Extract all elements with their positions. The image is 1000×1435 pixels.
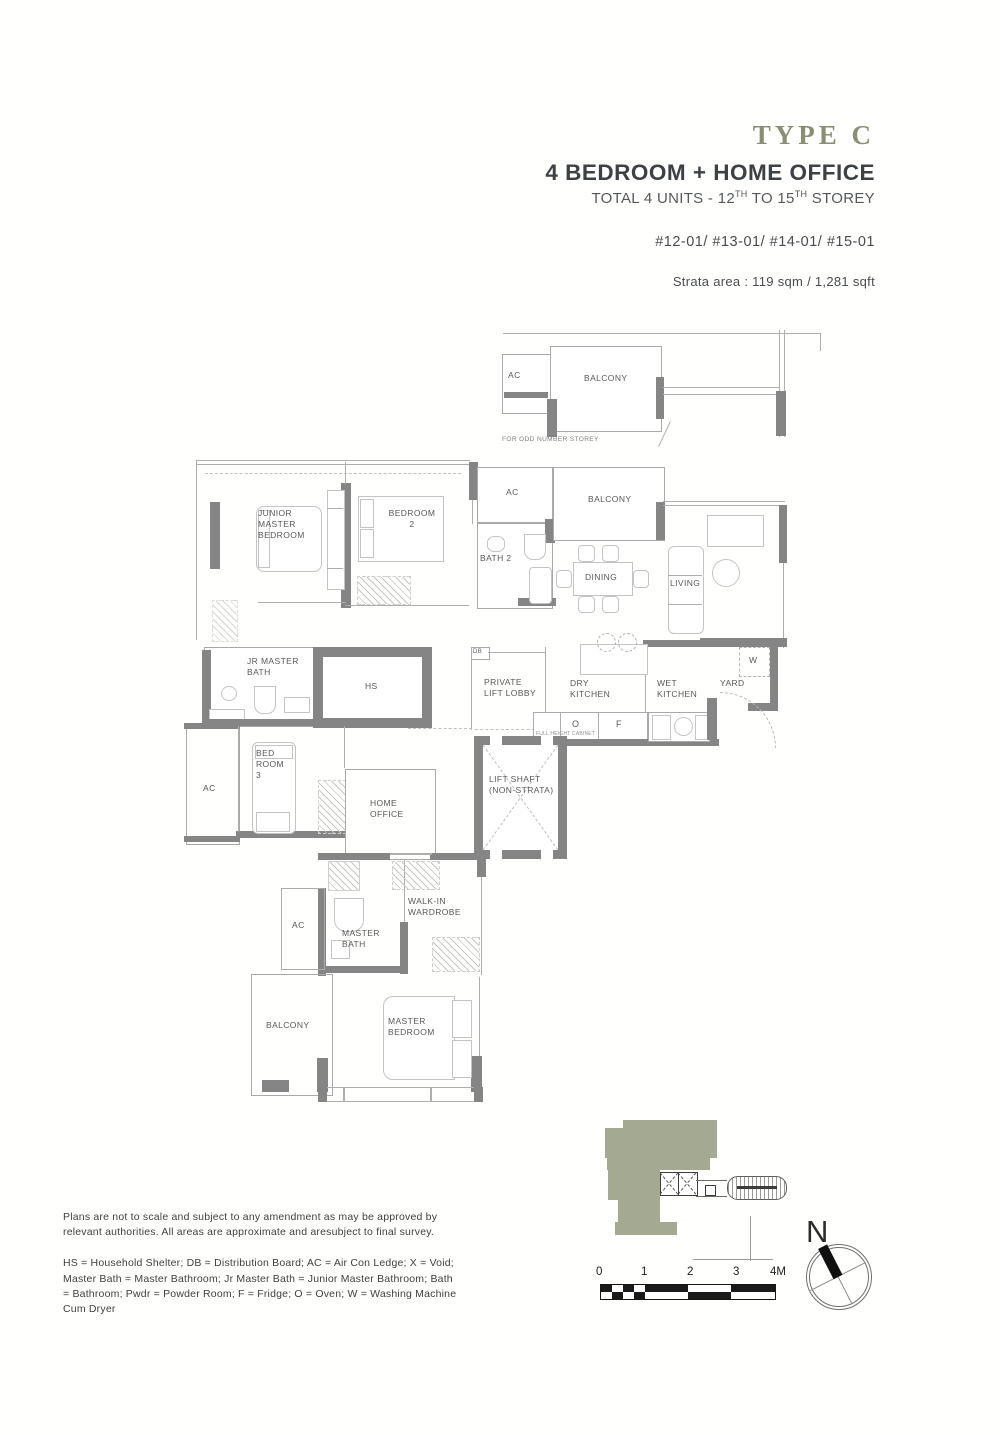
wall-line (663, 387, 780, 388)
furniture-chair (602, 596, 619, 613)
room-label: JR MASTER BATH (247, 656, 299, 678)
room-label: AC (203, 783, 216, 794)
wall-line (196, 464, 470, 465)
room-label: BEDROOM 2 (384, 508, 440, 530)
storey-sup: TH (735, 189, 748, 199)
keyplan-stair-rail (737, 1186, 777, 1189)
furniture-sofa (668, 546, 704, 634)
keyplan-line (693, 1259, 773, 1260)
wall-line (345, 462, 346, 484)
wall (430, 853, 486, 860)
keyplan-unit-shape (618, 1200, 660, 1222)
footer: Plans are not to scale and subject to an… (63, 1210, 461, 1333)
scale-seg (731, 1292, 775, 1299)
page-title: 4 BEDROOM + HOME OFFICE (255, 160, 875, 186)
storey-part: TO 15 (748, 190, 795, 207)
furniture-bench (256, 812, 290, 832)
furniture-counter (284, 697, 310, 713)
furniture-sink (487, 536, 505, 552)
furniture-wardrobe (392, 861, 440, 890)
furniture-pillow (452, 1000, 472, 1038)
wall (700, 638, 787, 647)
wall (504, 392, 548, 398)
header: TYPE C 4 BEDROOM + HOME OFFICE TOTAL 4 U… (255, 120, 875, 289)
furniture-hob (674, 717, 693, 736)
room-label: JUNIOR MASTER BEDROOM (258, 508, 305, 541)
wall (707, 698, 717, 740)
legend-text: HS = Household Shelter; DB = Distributio… (63, 1256, 461, 1317)
strata-area: Strata area : 119 sqm / 1,281 sqft (255, 274, 875, 289)
furniture-line (598, 712, 599, 740)
wall-line (503, 333, 821, 334)
furniture-toilet (524, 534, 546, 560)
wall (770, 647, 778, 707)
bay-window-hatch (212, 600, 238, 642)
furniture-stool (597, 633, 616, 652)
furniture-line (327, 568, 343, 569)
furniture-wardrobe (357, 576, 411, 605)
wall-line (471, 647, 472, 730)
wall-line (258, 602, 346, 603)
scale-seg (634, 1292, 645, 1299)
keyplan-line (696, 1196, 727, 1197)
wall (474, 1087, 483, 1102)
scale-seg (634, 1285, 645, 1292)
room-label: BATH 2 (480, 553, 512, 564)
furniture-pillow (452, 1040, 472, 1078)
wall-line (479, 977, 480, 1061)
room-label: AC (506, 487, 519, 498)
keyplan-unit-shape (605, 1128, 717, 1158)
furniture-pillow (360, 499, 374, 528)
keyplan-line (750, 1216, 751, 1261)
wall (210, 502, 220, 569)
room-label: DRY KITCHEN (570, 678, 610, 700)
wall-line (238, 726, 239, 832)
wall-line (196, 460, 470, 461)
keyplan-line (696, 1180, 727, 1181)
wall (318, 853, 390, 860)
scale-seg (645, 1285, 688, 1292)
scale-seg (623, 1285, 634, 1292)
keyplan-box (705, 1185, 716, 1196)
room-label: LIFT SHAFT (NON-STRATA) (489, 774, 553, 796)
wall (318, 1087, 327, 1102)
scale-tick-label: 3 (733, 1266, 739, 1278)
room-label: YARD (720, 678, 745, 689)
room-label: BALCONY (588, 494, 631, 505)
room-label: BALCONY (584, 373, 627, 384)
scale-tick-label: 0 (596, 1266, 602, 1278)
wall-gap (490, 850, 502, 859)
scale-seg (731, 1285, 775, 1292)
room-label: HOME OFFICE (370, 798, 404, 820)
room-label: DB (473, 649, 482, 657)
wall-line (820, 333, 821, 351)
furniture-tv-console (707, 515, 764, 547)
furniture-line (668, 575, 702, 576)
disclaimer-text: Plans are not to scale and subject to an… (63, 1210, 461, 1240)
furniture-chair (633, 570, 649, 588)
storey-part: TOTAL 4 UNITS - 12 (591, 190, 735, 207)
scale-seg (688, 1292, 731, 1299)
room-label: F (616, 719, 622, 731)
furniture-shower (328, 861, 360, 891)
furniture-pillow (360, 529, 374, 558)
wall-line (783, 563, 784, 648)
storey-part: STOREY (807, 190, 875, 207)
furniture-line (668, 604, 702, 605)
wall-line (390, 853, 432, 855)
furniture-island (580, 644, 648, 675)
wall (184, 836, 240, 842)
wall-line (488, 652, 545, 653)
wall (779, 505, 787, 563)
room-label: HS (365, 681, 378, 692)
detail-balcony (550, 346, 662, 432)
floorplan-page: TYPE C 4 BEDROOM + HOME OFFICE TOTAL 4 U… (0, 0, 1000, 1435)
wall-line (472, 500, 473, 524)
wall (202, 719, 316, 726)
scale-tick-label: 4M (770, 1266, 786, 1278)
detail-note: FOR ODD NUMBER STOREY (502, 436, 599, 444)
furniture-line (327, 508, 343, 509)
wall-gap (541, 850, 553, 859)
furniture-wardrobe (318, 780, 346, 834)
wall-line (663, 394, 780, 395)
entry-dash (408, 728, 472, 729)
keyplan-unit-shape (615, 1222, 677, 1235)
scale-bar-row (601, 1285, 775, 1292)
scale-seg (601, 1292, 612, 1299)
wall-line (344, 726, 345, 768)
furniture-wardrobe (432, 937, 480, 972)
furniture-toilet (334, 898, 364, 932)
room-label: LIVING (670, 578, 700, 589)
furniture-chair (578, 596, 595, 613)
wall-line (663, 501, 785, 502)
wall-line (663, 505, 785, 506)
door-swing-arc (664, 692, 776, 804)
detail-ac-ledge (502, 354, 551, 414)
scale-seg (612, 1285, 623, 1292)
room-label: BALCONY (266, 1020, 309, 1031)
scale-seg (645, 1292, 688, 1299)
room-label: W (749, 655, 757, 666)
wall-line (345, 605, 469, 606)
room-label: AC (508, 370, 521, 381)
furniture-sink (652, 715, 671, 740)
scale-bar-strip (600, 1284, 776, 1300)
room-label: DINING (585, 572, 617, 583)
room-label: BED ROOM 3 (256, 748, 284, 781)
furniture-chair (578, 545, 595, 562)
room-label: PRIVATE LIFT LOBBY (484, 677, 536, 699)
storey-line: TOTAL 4 UNITS - 12TH TO 15TH STOREY (255, 189, 875, 207)
curtain-dash (205, 473, 461, 474)
scale-tick-label: 1 (641, 1266, 647, 1278)
scale-seg (612, 1292, 623, 1299)
room-label: WET KITCHEN (657, 678, 697, 700)
furniture-sink (221, 686, 237, 701)
room-label: FULL HEIGHT CABINET (536, 731, 595, 738)
wall (318, 966, 408, 973)
wall (656, 377, 664, 419)
room-label: O (572, 719, 579, 731)
furniture-toilet (254, 686, 276, 714)
scale-bar-row (601, 1292, 775, 1299)
furniture-nightstand (327, 490, 345, 590)
wall (262, 1080, 289, 1092)
window-mullion (430, 1087, 432, 1102)
room-label: AC (292, 920, 305, 931)
storey-sup: TH (795, 189, 808, 199)
wall (547, 399, 557, 437)
scale-seg (688, 1285, 731, 1292)
unit-numbers: #12-01/ #13-01/ #14-01/ #15-01 (255, 234, 875, 250)
furniture-bathtub (529, 567, 552, 604)
wall-gap (490, 736, 502, 745)
type-label: TYPE C (255, 120, 875, 151)
scale-seg (601, 1285, 612, 1292)
furniture-stool (618, 633, 637, 652)
keyplan-unit-shape (607, 1158, 710, 1170)
wall (776, 391, 786, 436)
window-mullion (343, 1087, 345, 1102)
wall-line (545, 647, 546, 713)
room-label: MASTER BEDROOM (388, 1016, 435, 1038)
furniture-coffee-table (712, 559, 740, 587)
wall (643, 640, 703, 647)
keyplan-unit-shape (608, 1170, 660, 1200)
room-label: MASTER BATH (342, 928, 380, 950)
wall-line (196, 460, 197, 640)
scale-tick-label: 2 (687, 1266, 693, 1278)
wall (656, 502, 665, 540)
furniture-chair (556, 570, 572, 588)
scale-seg (623, 1292, 634, 1299)
furniture-chair (602, 545, 619, 562)
room-label: WALK-IN WARDROBE (408, 896, 461, 918)
